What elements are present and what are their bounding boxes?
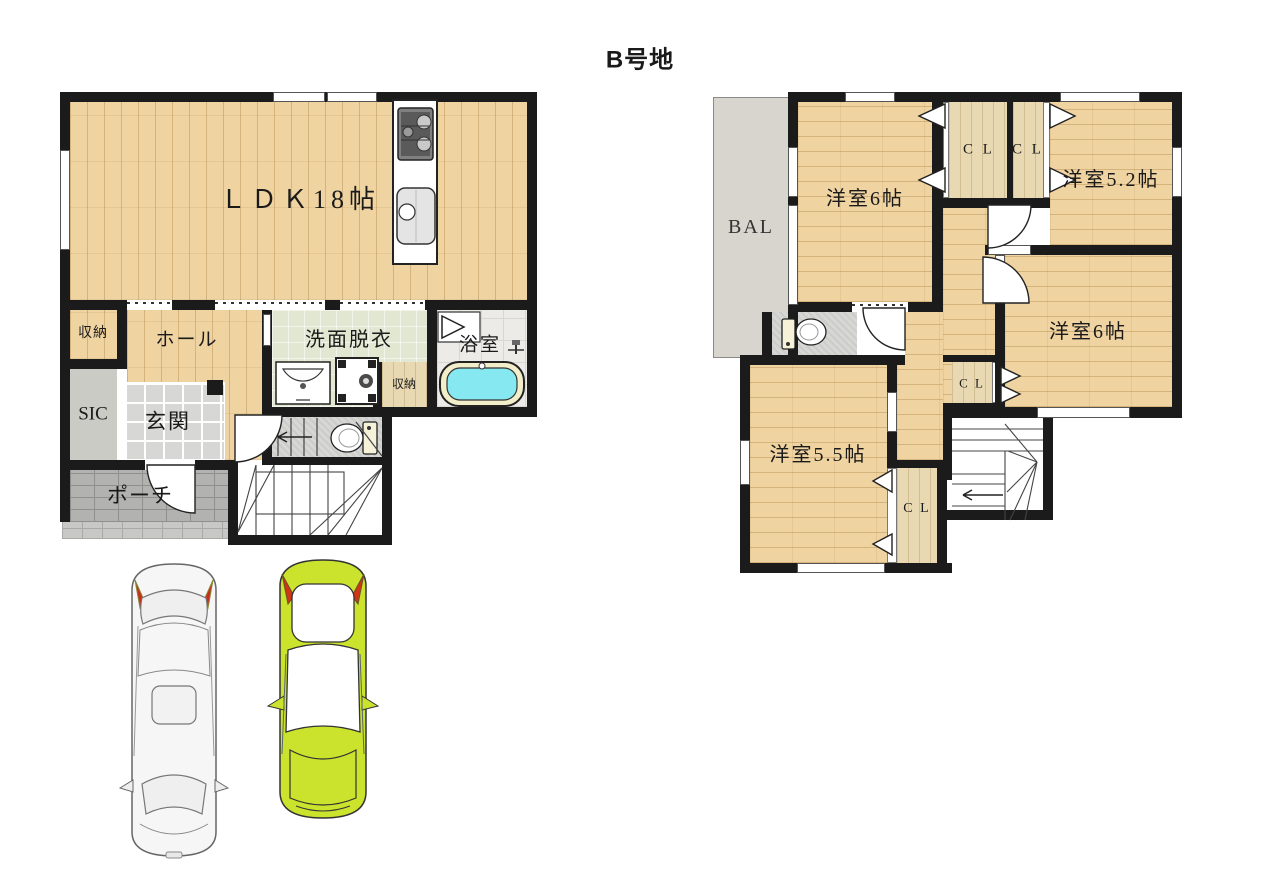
lime-compact-car — [266, 554, 380, 824]
stove-icon — [398, 108, 433, 160]
label-closet-bottom: C L — [903, 502, 930, 516]
label-hall: ホール — [155, 331, 218, 350]
floor-plan-1f: ＬＤＫ18帖 収納 ホール 洗面脱衣 浴室 収納 SIC 玄関 ポーチ — [60, 92, 537, 547]
toilet-icon — [782, 319, 826, 349]
label-closet-b: C L — [1012, 143, 1044, 158]
page-title: B号地 — [606, 40, 674, 75]
stair-direction-arrow — [963, 490, 1003, 500]
vanity-sink-icon — [276, 362, 330, 404]
label-washroom: 洗面脱衣 — [305, 330, 393, 350]
label-bedroom-top-right: 洋室5.2帖 — [1063, 170, 1160, 190]
shower-icon — [508, 340, 524, 354]
label-storage-small: 収納 — [392, 378, 416, 390]
label-balcony: BAL — [728, 217, 774, 237]
label-bedroom-right: 洋室6帖 — [1049, 322, 1127, 342]
label-genkan: 玄関 — [145, 412, 191, 433]
label-closet-a: C L — [963, 143, 995, 158]
label-closet-mid: C L — [959, 377, 985, 390]
staircase-lines — [238, 465, 382, 535]
door-arc — [863, 205, 1031, 350]
washer-pan-icon — [336, 358, 378, 404]
white-sedan-car — [118, 556, 230, 864]
bathtub-icon — [440, 362, 524, 406]
label-porch: ポーチ — [107, 486, 173, 507]
toilet-icon — [331, 422, 377, 454]
label-storage-top: 収納 — [78, 327, 108, 341]
label-bath: 浴室 — [459, 336, 501, 355]
label-sic: SIC — [78, 405, 108, 424]
label-bedroom-bottom-left: 洋室5.5帖 — [770, 445, 867, 465]
stair-direction-arrow — [278, 432, 312, 442]
staircase-lines — [952, 424, 1043, 520]
label-bedroom-top-left: 洋室6帖 — [826, 189, 904, 209]
floor-plan-2f: BAL 洋室6帖 C L C L 洋室5.2帖 洋室6帖 C L 洋室5.5帖 … — [705, 92, 1185, 581]
kitchen-counter — [393, 100, 437, 264]
label-ldk: ＬＤＫ18帖 — [220, 187, 380, 213]
floorplan-page: B号地 — [0, 0, 1280, 882]
sink-icon — [397, 188, 435, 244]
floor1-lineart — [60, 92, 537, 547]
